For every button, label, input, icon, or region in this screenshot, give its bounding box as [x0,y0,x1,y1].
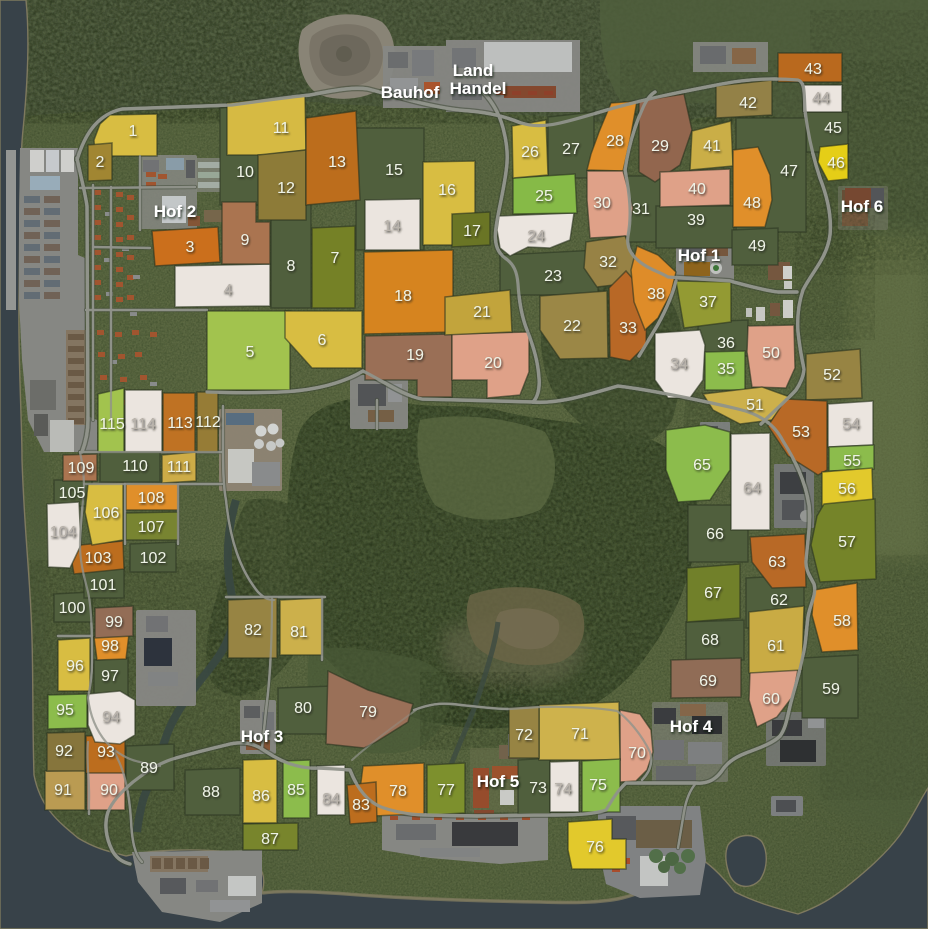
svg-text:36: 36 [717,335,735,352]
svg-text:16: 16 [438,182,456,199]
svg-text:68: 68 [701,632,719,649]
svg-text:9: 9 [241,232,250,249]
svg-text:19: 19 [406,347,424,364]
svg-text:111: 111 [167,459,191,476]
svg-text:86: 86 [252,788,270,805]
svg-text:88: 88 [202,784,220,801]
svg-text:29: 29 [651,138,669,155]
svg-text:1: 1 [129,123,138,140]
svg-text:15: 15 [385,162,403,179]
svg-text:73: 73 [529,780,547,797]
svg-text:62: 62 [770,592,788,609]
svg-text:54: 54 [842,416,860,433]
svg-text:103: 103 [85,550,112,567]
svg-text:89: 89 [140,760,158,777]
svg-text:40: 40 [688,181,706,198]
svg-text:105: 105 [59,485,86,502]
svg-text:37: 37 [699,294,717,311]
svg-text:44: 44 [812,90,830,107]
svg-text:13: 13 [328,154,346,171]
svg-text:71: 71 [571,726,589,743]
svg-text:8: 8 [287,258,296,275]
svg-text:94: 94 [102,709,120,726]
svg-text:56: 56 [838,481,856,498]
svg-text:61: 61 [767,638,785,655]
svg-text:96: 96 [66,658,84,675]
svg-text:98: 98 [101,638,119,655]
svg-text:Hof 1: Hof 1 [678,246,721,265]
svg-text:18: 18 [394,288,412,305]
svg-text:25: 25 [535,188,553,205]
svg-text:31: 31 [632,201,650,218]
svg-text:27: 27 [562,141,580,158]
svg-text:50: 50 [762,345,780,362]
svg-text:57: 57 [838,534,856,551]
svg-text:6: 6 [318,332,327,349]
svg-text:Hof 4: Hof 4 [670,717,713,736]
svg-text:106: 106 [93,505,120,522]
svg-text:45: 45 [824,120,842,137]
svg-text:95: 95 [56,702,74,719]
svg-text:38: 38 [647,286,665,303]
svg-text:20: 20 [484,355,502,372]
svg-text:43: 43 [804,61,822,78]
svg-text:110: 110 [122,458,148,475]
svg-text:4: 4 [224,282,233,299]
svg-text:72: 72 [515,727,533,744]
svg-text:Land: Land [453,61,494,80]
svg-text:7: 7 [331,250,340,267]
svg-text:102: 102 [140,550,167,567]
svg-text:33: 33 [619,320,637,337]
svg-text:80: 80 [294,700,312,717]
svg-text:17: 17 [463,223,481,240]
svg-text:Bauhof: Bauhof [381,83,440,102]
svg-text:5: 5 [246,344,255,361]
svg-text:113: 113 [167,415,193,432]
svg-text:34: 34 [670,356,688,373]
svg-text:24: 24 [527,228,545,245]
svg-text:52: 52 [823,367,841,384]
svg-text:46: 46 [827,155,845,172]
svg-text:93: 93 [97,744,115,761]
svg-text:Hof 5: Hof 5 [477,772,520,791]
svg-text:112: 112 [195,414,221,431]
svg-text:85: 85 [287,782,305,799]
svg-text:48: 48 [743,195,761,212]
svg-text:12: 12 [277,180,295,197]
svg-text:23: 23 [544,268,562,285]
svg-text:63: 63 [768,554,786,571]
svg-text:100: 100 [59,600,86,617]
svg-text:90: 90 [100,782,118,799]
svg-text:14: 14 [383,218,401,235]
svg-text:77: 77 [437,782,455,799]
svg-text:Handel: Handel [450,79,507,98]
svg-text:10: 10 [236,164,254,181]
svg-text:107: 107 [138,519,165,536]
svg-text:49: 49 [748,238,766,255]
svg-text:21: 21 [473,304,491,321]
svg-text:51: 51 [746,397,764,414]
svg-text:75: 75 [589,777,607,794]
svg-text:67: 67 [704,585,722,602]
svg-text:26: 26 [521,144,539,161]
svg-text:47: 47 [780,163,798,180]
svg-text:2: 2 [96,154,105,171]
svg-text:55: 55 [843,453,861,470]
svg-text:3: 3 [186,239,195,256]
svg-text:87: 87 [261,831,279,848]
svg-text:58: 58 [833,613,851,630]
svg-text:22: 22 [563,318,581,335]
svg-text:66: 66 [706,526,724,543]
svg-text:101: 101 [90,577,117,594]
svg-text:Hof 6: Hof 6 [841,197,884,216]
svg-text:39: 39 [687,212,705,229]
svg-text:64: 64 [743,480,761,497]
svg-text:30: 30 [593,195,611,212]
svg-text:92: 92 [55,743,73,760]
svg-text:70: 70 [628,745,646,762]
svg-text:Hof 3: Hof 3 [241,727,284,746]
svg-text:60: 60 [762,691,780,708]
svg-text:83: 83 [352,797,370,814]
svg-text:114: 114 [130,416,156,433]
svg-text:41: 41 [703,138,721,155]
svg-text:74: 74 [554,781,572,798]
svg-text:97: 97 [101,668,119,685]
svg-text:78: 78 [389,783,407,800]
svg-text:53: 53 [792,424,810,441]
svg-text:109: 109 [68,460,95,477]
svg-text:104: 104 [50,524,77,541]
svg-text:108: 108 [138,490,165,507]
svg-text:84: 84 [322,791,340,808]
svg-text:99: 99 [105,614,123,631]
svg-text:76: 76 [586,839,604,856]
svg-text:69: 69 [699,673,717,690]
svg-text:Hof 2: Hof 2 [154,202,197,221]
svg-text:42: 42 [739,95,757,112]
svg-text:115: 115 [99,416,125,433]
svg-text:91: 91 [54,782,72,799]
svg-text:79: 79 [359,704,377,721]
svg-text:32: 32 [599,254,617,271]
svg-text:81: 81 [290,624,308,641]
svg-text:35: 35 [717,361,735,378]
svg-text:28: 28 [606,133,624,150]
svg-text:82: 82 [244,622,262,639]
svg-text:11: 11 [273,120,290,137]
svg-text:65: 65 [693,457,711,474]
svg-text:59: 59 [822,681,840,698]
